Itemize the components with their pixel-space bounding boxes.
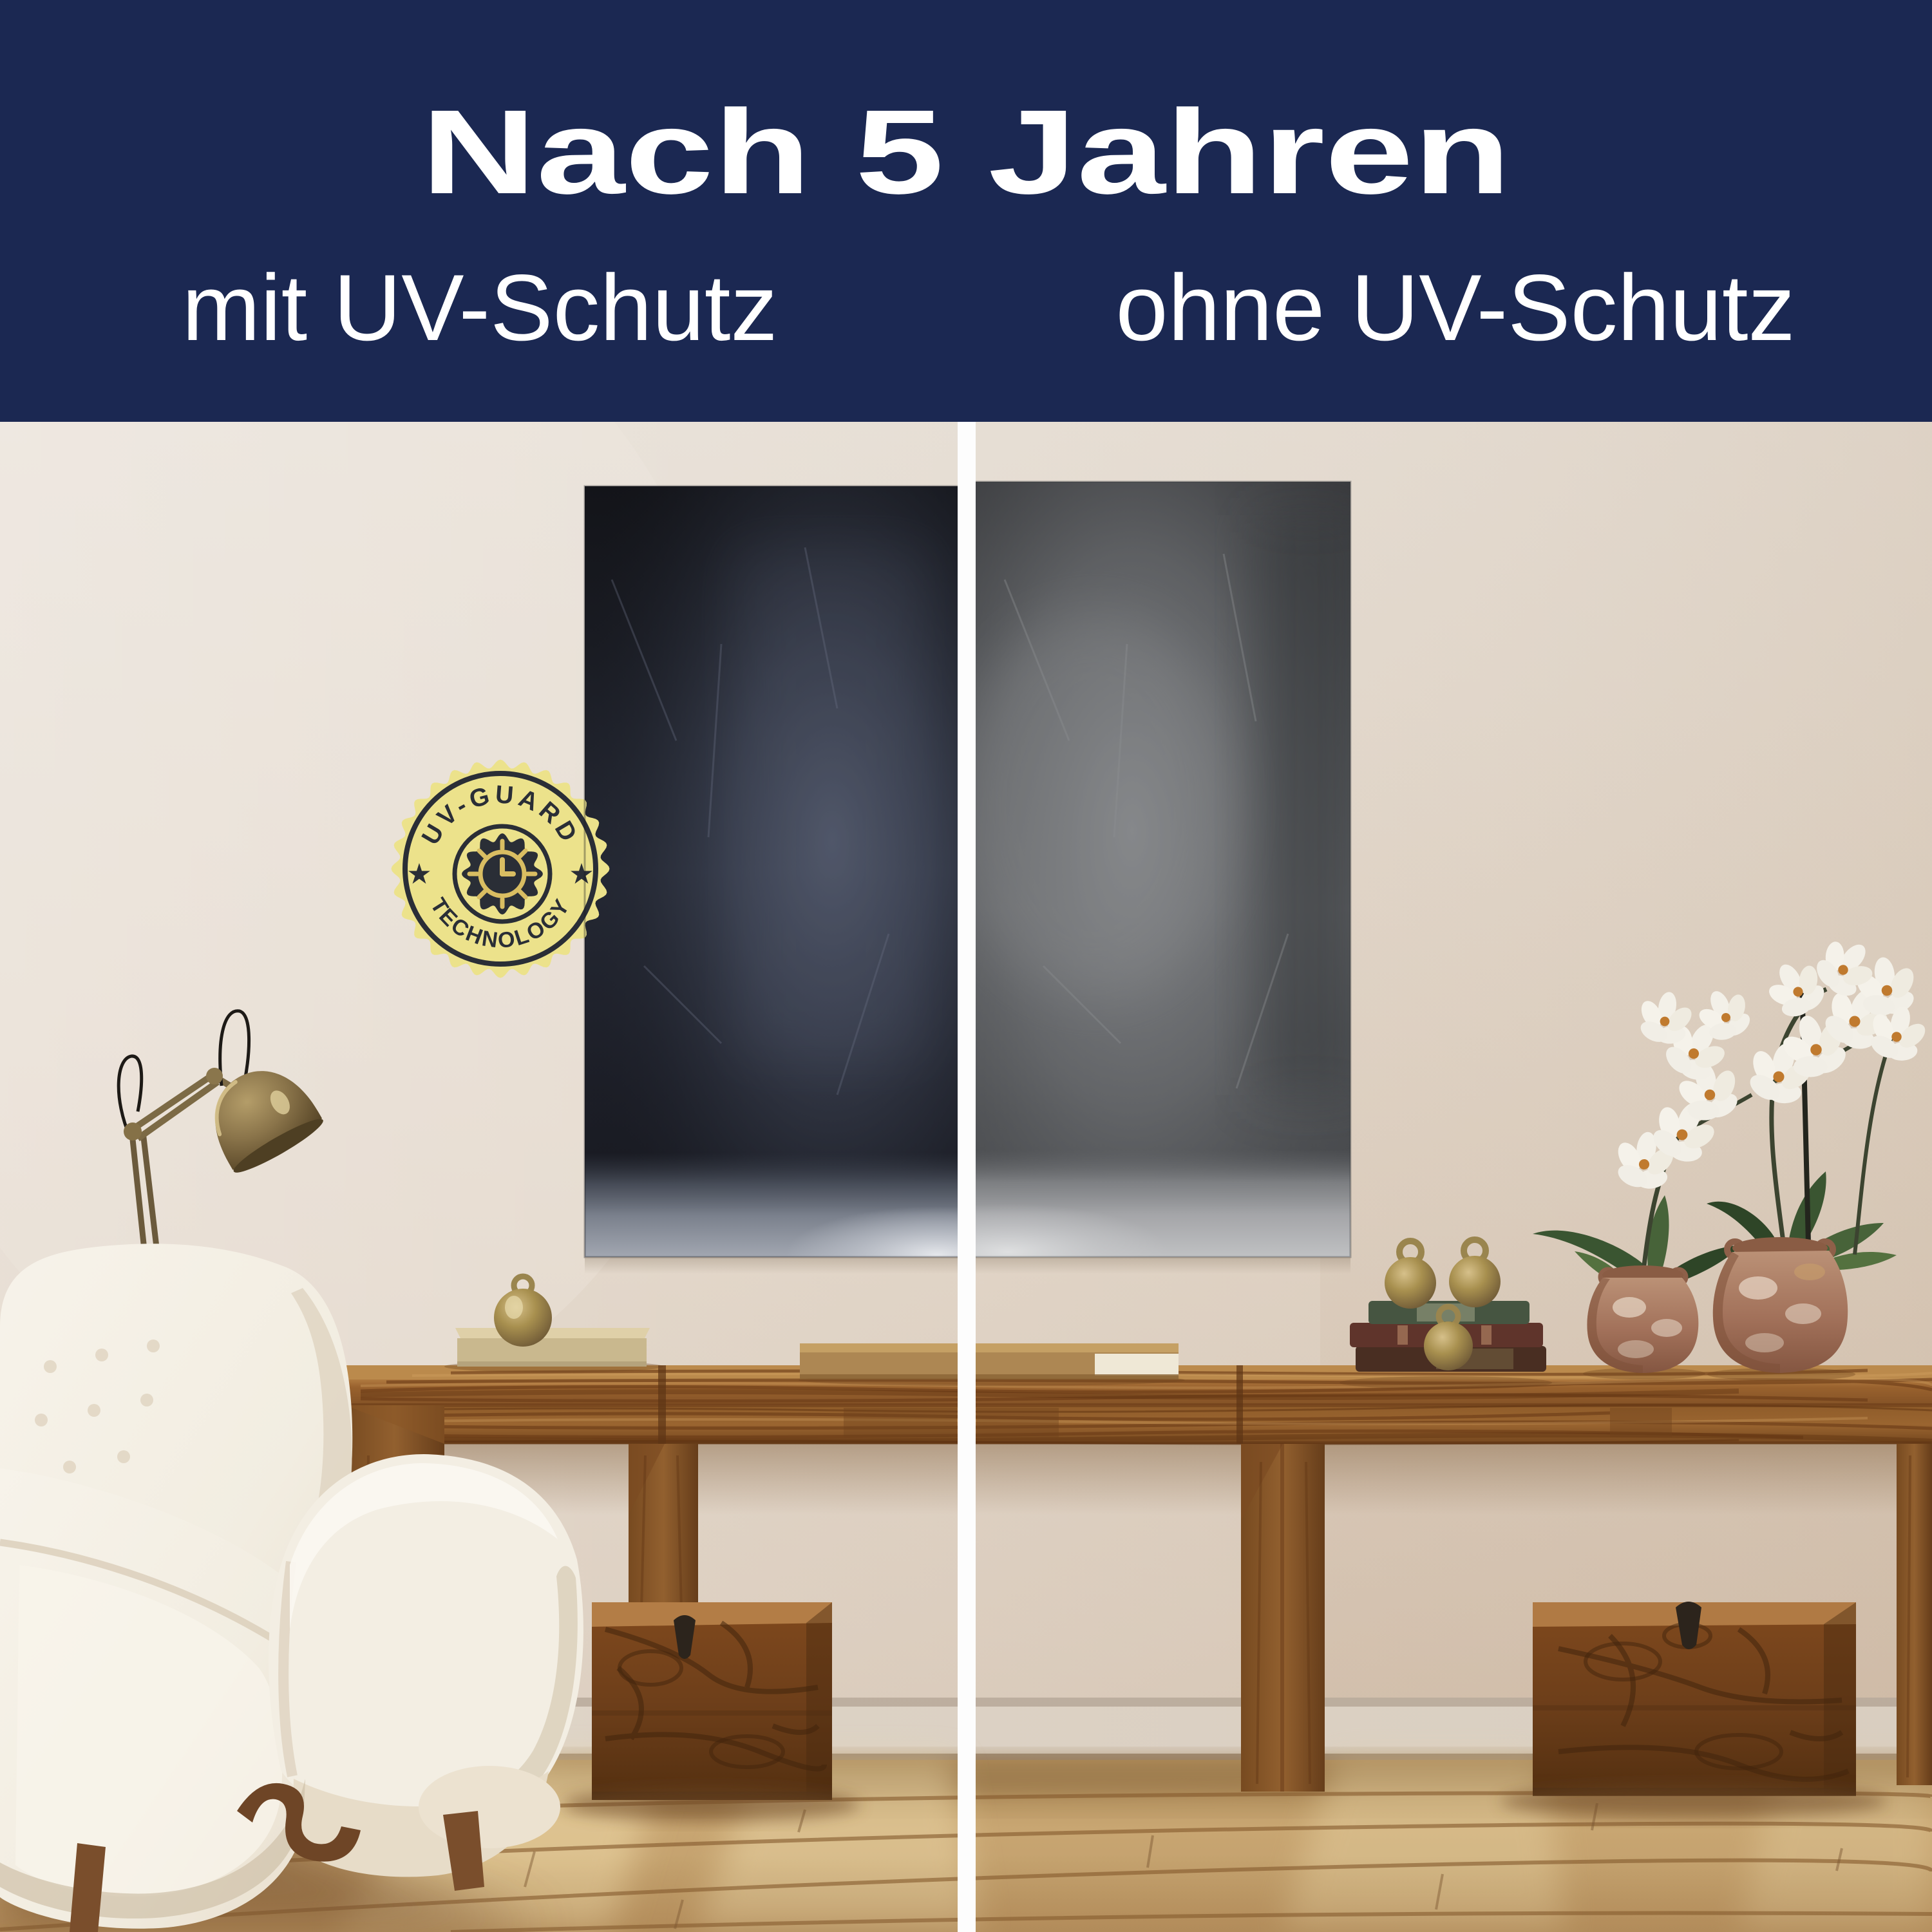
svg-text:mit UV-Schutz: mit UV-Schutz [182,255,778,360]
svg-text:ohne UV-Schutz: ohne UV-Schutz [1115,255,1795,360]
svg-text:★: ★ [569,858,594,890]
svg-text:Nach 5 Jahren: Nach 5 Jahren [421,86,1511,219]
svg-text:★: ★ [406,858,431,890]
